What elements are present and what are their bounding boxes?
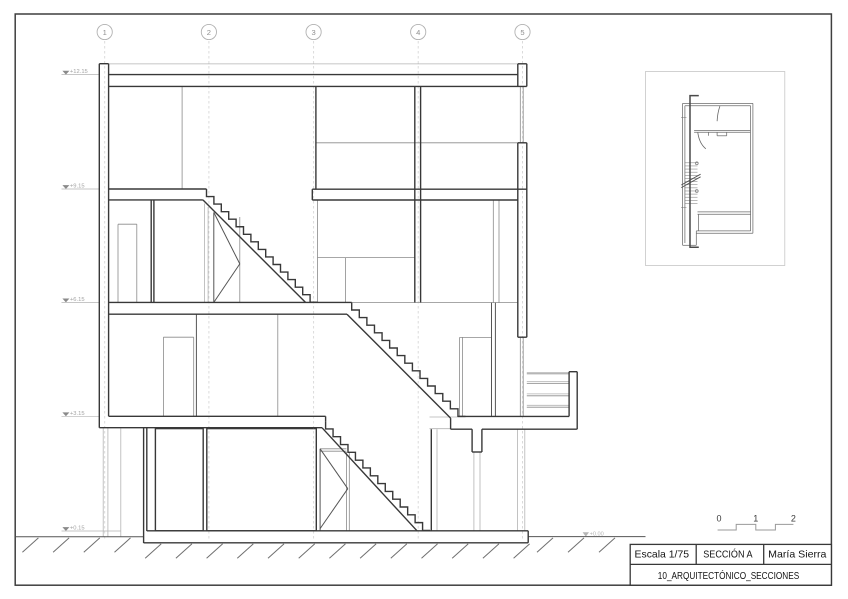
svg-text:1: 1 (753, 514, 758, 524)
svg-text:+12.15: +12.15 (70, 69, 88, 75)
svg-text:+3.15: +3.15 (70, 411, 85, 417)
svg-text:10_ARQUITECTÓNICO_SECCIONES: 10_ARQUITECTÓNICO_SECCIONES (658, 569, 799, 582)
svg-text:3: 3 (311, 28, 315, 37)
svg-text:+9.15: +9.15 (70, 184, 85, 190)
svg-text:2: 2 (207, 28, 211, 37)
svg-text:+6.15: +6.15 (70, 297, 85, 303)
svg-text:5: 5 (520, 28, 524, 37)
svg-text:SECCIÓN A: SECCIÓN A (703, 548, 752, 561)
svg-text:4: 4 (416, 28, 420, 37)
svg-text:0: 0 (716, 514, 721, 524)
svg-text:+0.00: +0.00 (590, 531, 604, 537)
svg-text:1: 1 (103, 28, 107, 37)
svg-text:+0.15: +0.15 (70, 526, 85, 532)
svg-text:María Sierra: María Sierra (768, 549, 826, 561)
svg-text:Escala 1/75: Escala 1/75 (635, 549, 690, 561)
svg-text:2: 2 (791, 514, 796, 524)
